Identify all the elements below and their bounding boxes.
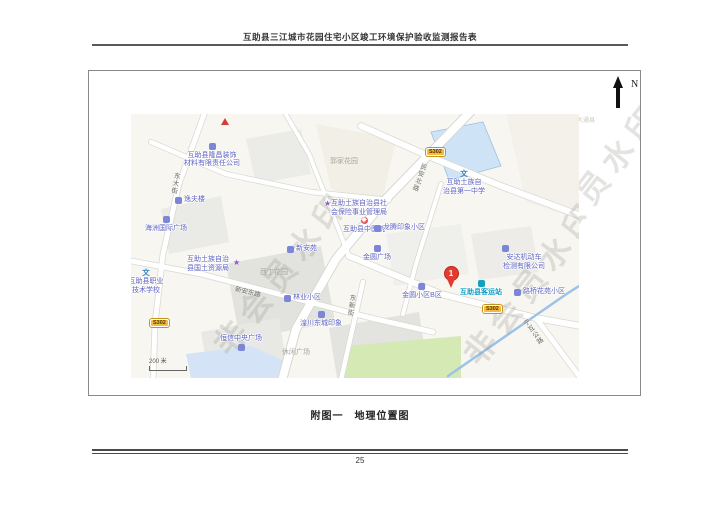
area-label-guojia-garden: 郭家花园 — [330, 158, 358, 167]
building-icon — [284, 295, 291, 302]
poi-xinan-yuan: 新安苑 — [287, 245, 317, 254]
building-icon — [318, 311, 325, 318]
figure-caption: 附图一 地理位置图 — [0, 407, 720, 422]
map-canvas: 非会员水印 非会员水印 民安北路 东大街 东新街 新安东路 宁互公路 S302 … — [131, 114, 579, 378]
scale-label: 200 米 — [149, 356, 187, 365]
hospital-cross-icon: + — [361, 217, 368, 224]
road-badge-s302: S302 — [483, 305, 502, 313]
school-icon: 文 — [142, 269, 150, 277]
poi-vocational-school: 文 互助县职业 技术学校 — [131, 269, 164, 295]
poi-decor-company: 互助县隆昌装饰 材料有限责任公司 — [184, 143, 240, 169]
scenic-triangle-icon — [221, 118, 229, 125]
area-label-leisure-square: 休闲广场 — [282, 349, 310, 358]
poi-jinyuan-plaza: 金圆广场 — [363, 245, 391, 262]
poi-jinyuan-community-b: 金圆小区B区 — [402, 283, 442, 300]
map-figure-box: N 大通县 非会员水印 — [88, 70, 641, 396]
building-icon — [374, 225, 381, 232]
poi-social-insurance-bureau: 互助土族自治县社 会保险事业管理局 — [331, 200, 387, 217]
building-icon — [502, 245, 509, 252]
building-icon — [418, 283, 425, 290]
footer-rule — [92, 449, 628, 454]
building-icon — [374, 245, 381, 252]
school-icon: 文 — [460, 170, 468, 178]
poi-longteng-community: 龙腾印象小区 — [374, 224, 425, 233]
poi-land-resources-bureau: 互助土族自治 县国土资源局 — [187, 256, 229, 273]
header-rule — [92, 44, 628, 46]
building-icon — [514, 289, 521, 296]
poi-anda-vehicle-inspection: 安达机动车 检测有限公司 — [503, 254, 545, 271]
page-number: 25 — [0, 456, 720, 465]
poi-huangchuan-community: 湟川东城印象 — [300, 311, 342, 328]
poi-yifu-building: 逸夫楼 — [175, 196, 205, 205]
location-pin: 1 — [443, 266, 459, 288]
building-icon — [287, 246, 294, 253]
building-icon — [175, 197, 182, 204]
document-header-title: 互助县三江城市花园住宅小区竣工环境保护验收监测报告表 — [0, 31, 720, 43]
north-label: N — [631, 79, 638, 90]
road-badge-s302: S302 — [150, 319, 169, 327]
map-scale-bar: 200 米 — [149, 356, 187, 371]
building-icon — [238, 344, 245, 351]
government-star-icon: ★ — [233, 259, 240, 267]
adjacent-county-label: 大通县 — [577, 115, 595, 124]
area-label-xiding-garden: 西丁花园 — [260, 269, 288, 278]
poi-hengxin-plaza: 恒信中央广场 — [220, 335, 262, 352]
bus-station-icon — [478, 280, 485, 287]
building-icon — [209, 143, 216, 150]
road-badge-s302: S302 — [426, 148, 445, 156]
poi-bus-station: 互助县客运站 — [460, 280, 502, 297]
poi-forestry-community: 林业小区 — [284, 294, 321, 303]
north-arrow-icon — [611, 76, 625, 110]
poi-haizhou-plaza: 海洲国际广场 — [145, 216, 187, 233]
document-page: 互助县三江城市花园住宅小区竣工环境保护验收监测报告表 N 大通县 非会员水印 — [0, 0, 720, 508]
building-icon — [163, 216, 170, 223]
poi-first-middle-school: 文 互助土族自 治县第一中学 — [443, 170, 485, 196]
poi-luqiao-community: 路桥花苑小区 — [514, 288, 565, 297]
